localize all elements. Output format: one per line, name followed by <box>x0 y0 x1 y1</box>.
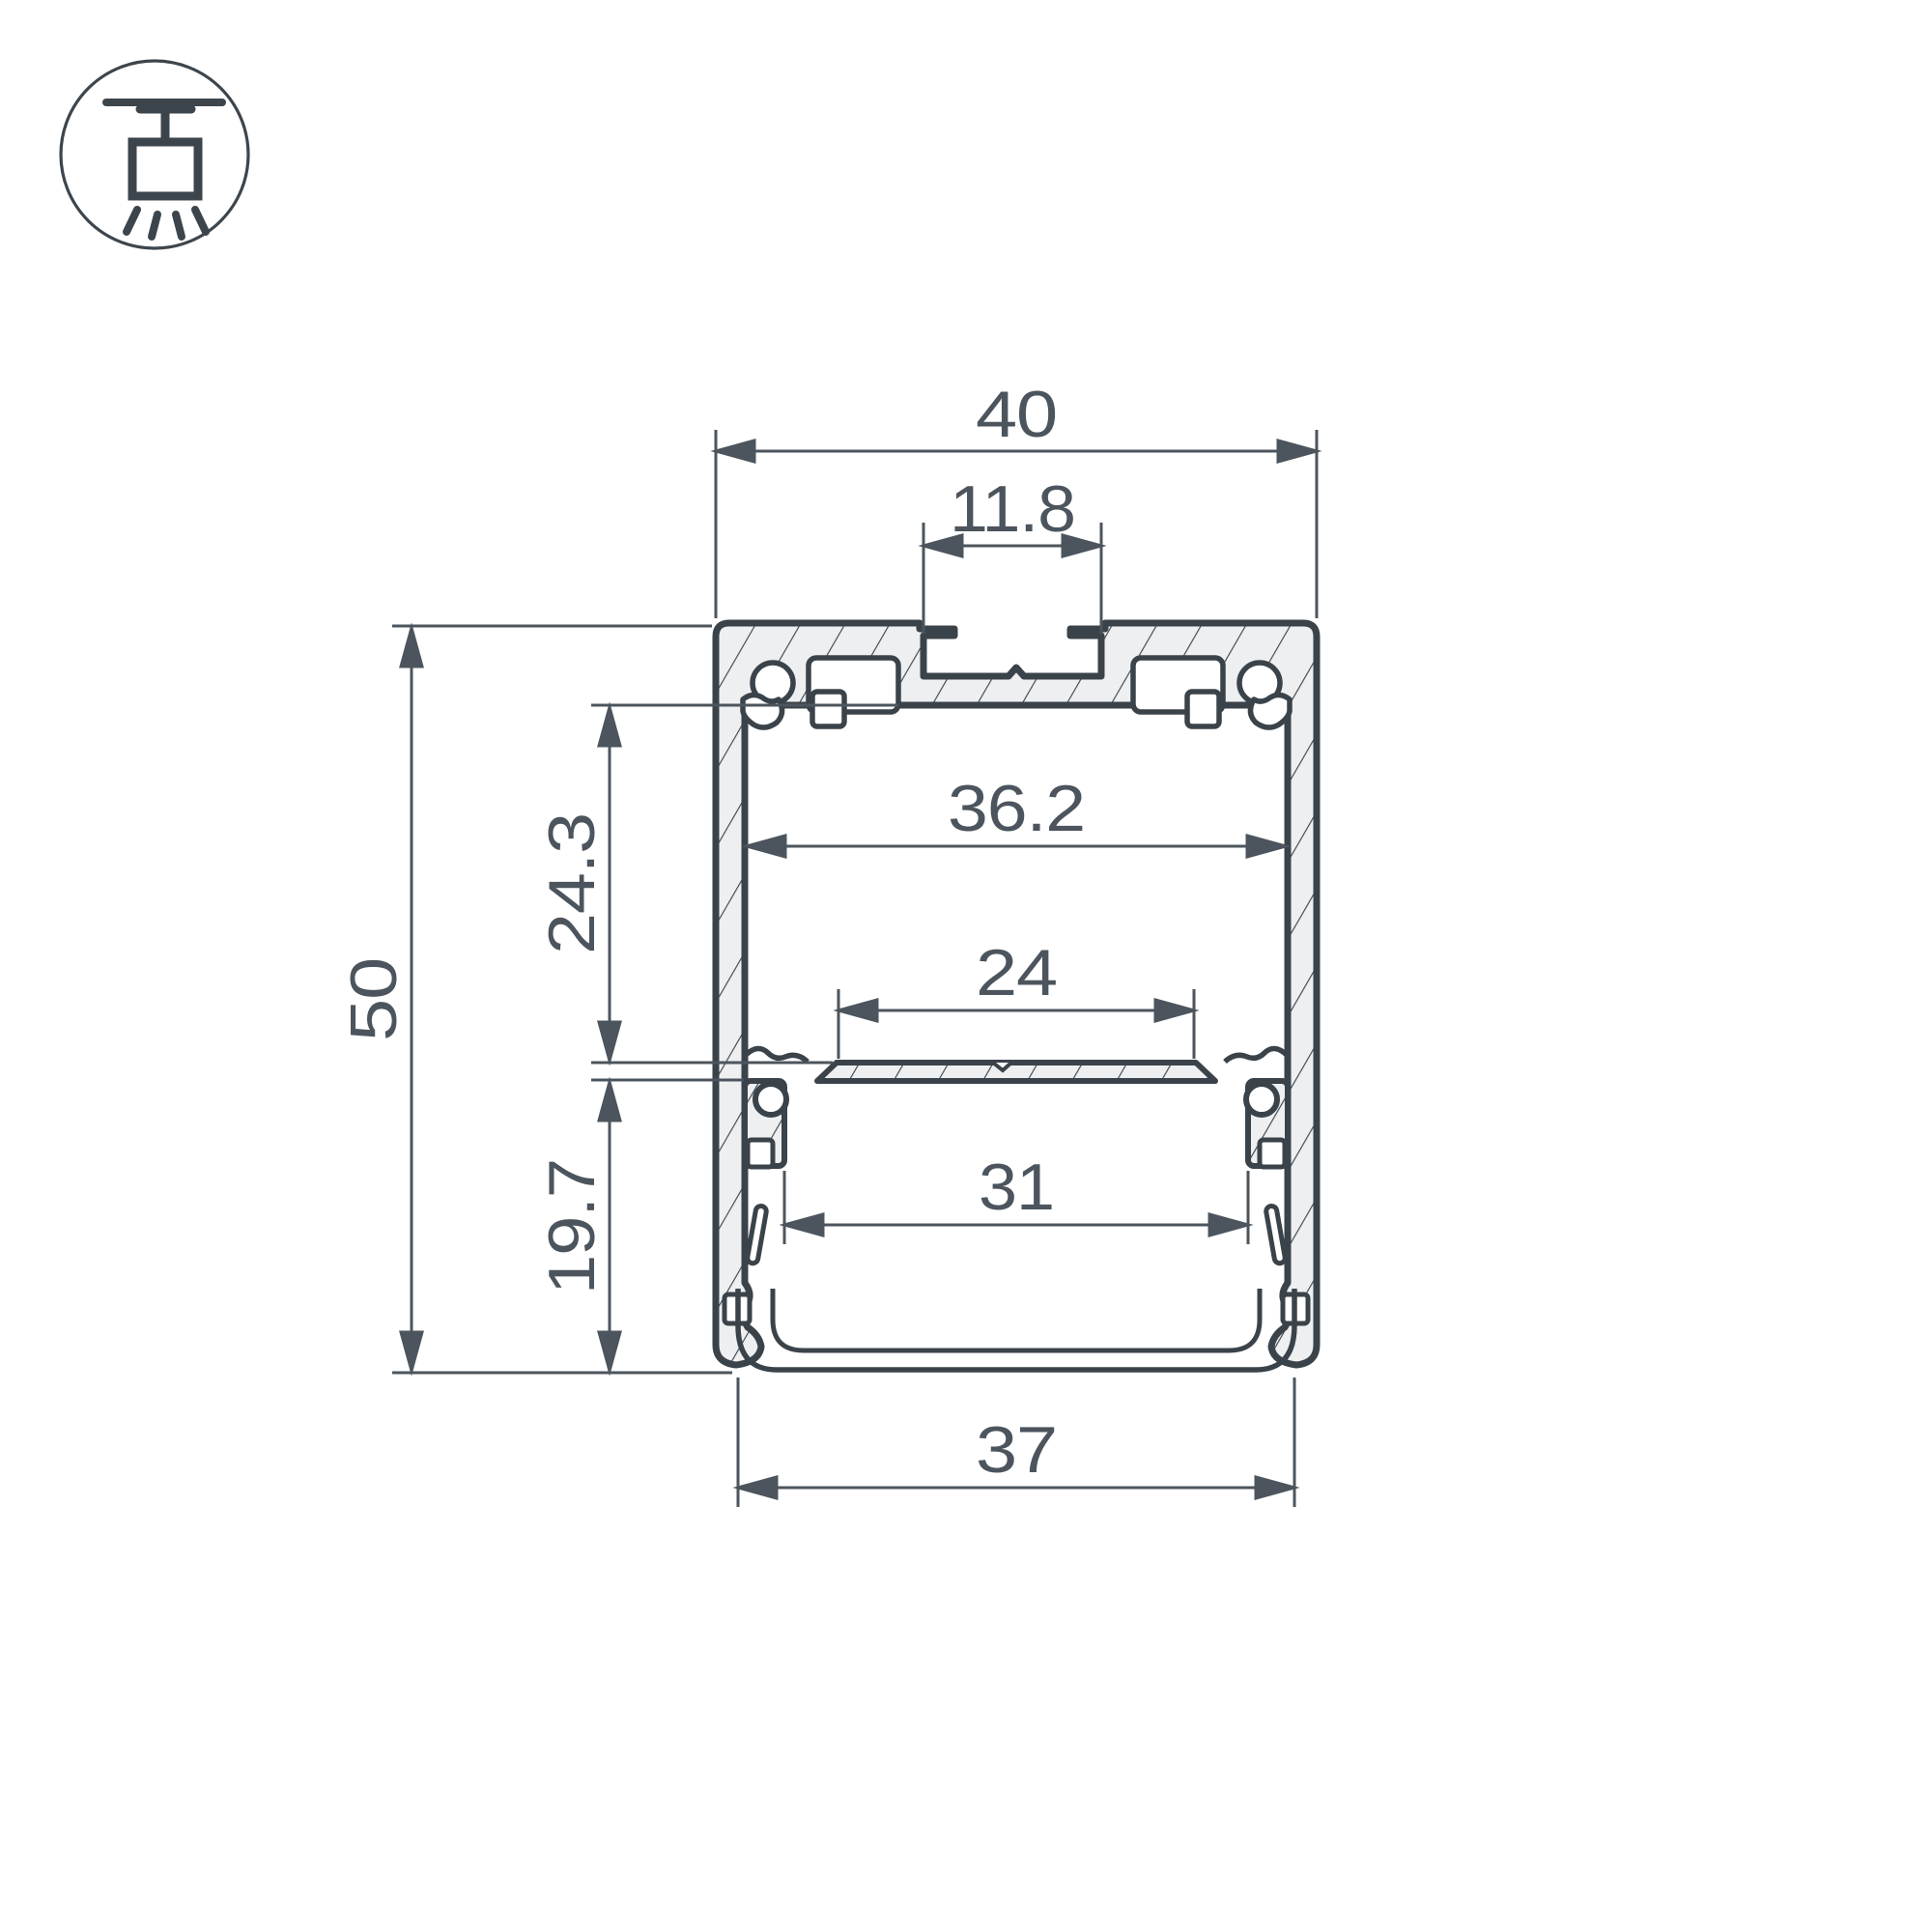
dim-label-outer-height: 50 <box>337 958 411 1041</box>
mounting-plate-band <box>817 1063 1215 1081</box>
dimension-board-shelf-width: 31 <box>784 1151 1248 1244</box>
arrowhead <box>1256 1477 1294 1498</box>
dim-label-diffuser-width: 37 <box>976 1413 1057 1487</box>
dim-label-lower-chamber-height: 19.7 <box>535 1159 609 1294</box>
drawing-canvas: 40 11.8 36.2 24 <box>0 0 1932 1932</box>
arrowhead <box>838 1000 877 1021</box>
arrowhead <box>599 1332 620 1371</box>
light-rays <box>127 210 206 237</box>
dimension-lower-chamber-height: 19.7 <box>535 1082 620 1371</box>
shelf-notch-left <box>748 1140 773 1167</box>
arrowhead <box>599 707 620 746</box>
dimensions: 40 11.8 36.2 24 <box>337 378 1317 1507</box>
arrowhead <box>401 1332 422 1371</box>
screw-port-mid-right <box>1246 1084 1277 1115</box>
dim-label-upper-chamber-height: 24.3 <box>535 813 609 954</box>
dimension-diffuser-width: 37 <box>738 1378 1294 1507</box>
arrowhead <box>738 1477 777 1498</box>
dimension-inner-width: 36.2 <box>747 772 1286 857</box>
snap-hook-top-left <box>743 695 782 727</box>
snap-hook-top-right <box>1250 695 1290 727</box>
arrowhead <box>1247 836 1286 857</box>
dim-label-inner-width: 36.2 <box>948 772 1085 845</box>
arrowhead <box>784 1214 823 1236</box>
shelf-notch-right <box>1260 1140 1285 1167</box>
arrowhead <box>599 1022 620 1061</box>
luminaire-body <box>132 142 198 196</box>
plate-hook-left <box>746 1048 808 1062</box>
wireway-notch-right <box>1187 692 1219 726</box>
arrowhead <box>401 628 422 667</box>
dimension-plate-flat-width: 24 <box>838 936 1194 1059</box>
arrowhead <box>1278 440 1317 462</box>
arrowhead <box>1155 1000 1194 1021</box>
arrowhead <box>747 836 785 857</box>
screw-port-mid-left <box>755 1084 786 1115</box>
spring-clip-left <box>747 1206 767 1264</box>
mounting-plate <box>745 1048 1288 1167</box>
arrowhead <box>599 1082 620 1121</box>
arrowhead <box>716 440 754 462</box>
dim-label-plate-flat-width: 24 <box>976 936 1057 1009</box>
arrowhead <box>1209 1214 1248 1236</box>
suspended-mount-icon <box>61 61 248 248</box>
plate-hook-right <box>1225 1048 1287 1062</box>
profile-cross-section-drawing: 40 11.8 36.2 24 <box>0 0 1932 1932</box>
dim-label-outer-width: 40 <box>976 378 1057 451</box>
dim-label-slot-width: 11.8 <box>950 472 1075 546</box>
diffuser-inner-line <box>773 1289 1260 1350</box>
dim-label-board-shelf-width: 31 <box>979 1151 1054 1224</box>
wireway-notch-left <box>812 692 844 726</box>
dimension-slot-width: 11.8 <box>923 472 1101 634</box>
spring-clip-right <box>1265 1206 1286 1264</box>
diffuser-outer-line <box>738 1289 1294 1370</box>
